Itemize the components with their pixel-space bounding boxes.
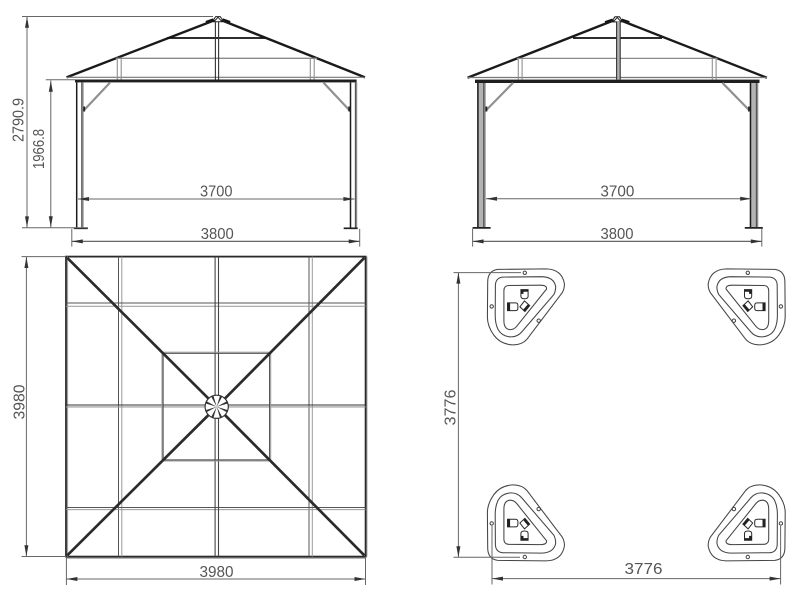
svg-text:3800: 3800 bbox=[601, 226, 634, 243]
svg-text:2790.9: 2790.9 bbox=[11, 98, 28, 142]
svg-text:3800: 3800 bbox=[201, 226, 234, 243]
svg-text:3980: 3980 bbox=[11, 384, 28, 419]
svg-text:3776: 3776 bbox=[442, 389, 459, 425]
svg-text:3980: 3980 bbox=[200, 564, 234, 581]
svg-text:3776: 3776 bbox=[625, 561, 663, 578]
svg-text:3700: 3700 bbox=[200, 183, 233, 200]
svg-text:3700: 3700 bbox=[600, 183, 634, 200]
svg-text:1966.8: 1966.8 bbox=[31, 129, 48, 169]
